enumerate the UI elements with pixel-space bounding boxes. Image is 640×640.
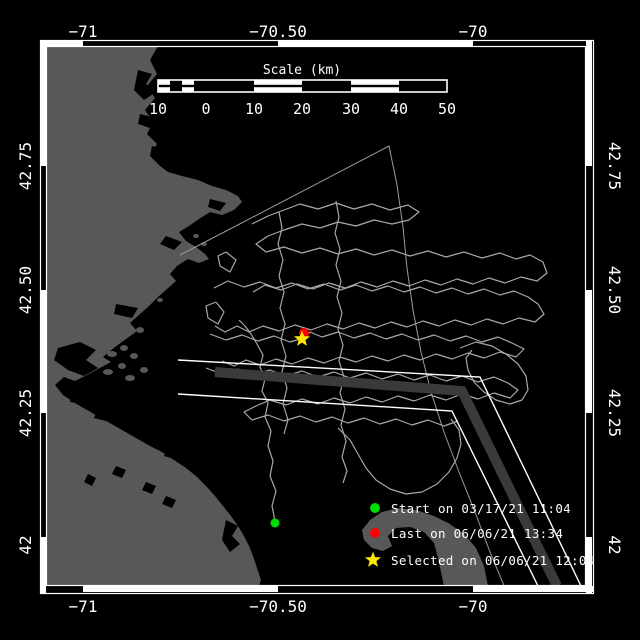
legend-selected-label: Selected on 06/06/21 12:04 <box>391 553 594 568</box>
scale-bar-cell-stripe <box>158 85 170 87</box>
track-line <box>218 252 236 272</box>
lat-tick-label: 42.75 <box>605 142 624 190</box>
legend-last-label: Last on 06/06/21 13:34 <box>391 526 563 541</box>
lat-tick-label: 42.75 <box>16 142 35 190</box>
lat-tick-label: 42 <box>16 535 35 554</box>
lat-axis-right: 42.75 42.50 42.25 42 <box>605 142 624 555</box>
frame-tick-segment <box>586 166 592 290</box>
scale-bar-cell <box>302 80 351 92</box>
lon-tick-label: −70 <box>459 597 488 616</box>
track-polylines <box>206 201 547 521</box>
frame-tick-segment <box>83 586 278 592</box>
lat-tick-label: 42.50 <box>16 266 35 314</box>
scale-bar: Scale (km) 10 0 10 20 30 40 50 <box>149 63 456 118</box>
frame-tick-segment <box>586 290 592 413</box>
track-line <box>206 302 224 324</box>
island <box>96 357 104 363</box>
lat-tick-label: 42.25 <box>16 389 35 437</box>
scale-bar-cell-stripe <box>351 85 399 87</box>
land-mass <box>46 46 261 586</box>
frame-tick-segment <box>473 586 594 592</box>
legend-marker-1 <box>370 528 380 538</box>
scale-bar-tick-labels: 10 0 10 20 30 40 50 <box>149 100 456 118</box>
island <box>120 345 128 351</box>
island <box>193 234 199 238</box>
scale-bar-cell-stripe <box>254 85 302 87</box>
island <box>93 340 99 344</box>
frame-tick-segment <box>586 40 592 166</box>
lon-tick-label: −71 <box>69 597 98 616</box>
scale-tick-label: 50 <box>438 100 456 118</box>
lon-axis-top: −71 −70.50 −70 <box>69 22 488 41</box>
frame-tick-segment <box>40 586 83 592</box>
scale-tick-label: 10 <box>149 100 167 118</box>
island <box>125 375 135 381</box>
scale-bar-cell-stripe <box>182 85 194 87</box>
scale-tick-label: 10 <box>245 100 263 118</box>
track-line <box>239 320 276 521</box>
lat-tick-label: 42.25 <box>605 389 624 437</box>
scale-bar-cell <box>206 80 254 92</box>
lat-axis-left: 42.75 42.50 42.25 42 <box>16 142 35 555</box>
island <box>130 353 138 359</box>
lon-tick-label: −70.50 <box>249 597 307 616</box>
frame-tick-segment <box>586 413 592 537</box>
lat-tick-label: 42.50 <box>605 266 624 314</box>
scale-tick-label: 0 <box>201 100 210 118</box>
legend-start-label: Start on 03/17/21 11:04 <box>391 501 571 516</box>
water-inlet <box>150 146 168 160</box>
scale-bar-cell <box>399 80 447 92</box>
land-mass <box>362 508 488 586</box>
scale-tick-label: 20 <box>293 100 311 118</box>
scale-bar-cell <box>170 80 182 92</box>
track-point-markers <box>271 328 311 528</box>
island <box>136 327 144 333</box>
island <box>103 369 113 375</box>
lon-tick-label: −70 <box>459 22 488 41</box>
scale-tick-label: 40 <box>390 100 408 118</box>
start-point-marker <box>271 519 280 528</box>
scale-bar-segments <box>158 80 447 92</box>
island <box>107 351 117 357</box>
track-line <box>335 201 347 483</box>
lon-tick-label: −71 <box>69 22 98 41</box>
island <box>118 363 126 369</box>
scale-bar-title: Scale (km) <box>263 63 341 78</box>
scale-tick-label: 30 <box>342 100 360 118</box>
track-line <box>252 203 547 292</box>
lon-tick-label: −70.50 <box>249 22 307 41</box>
island <box>140 367 148 373</box>
track-map-screen: −71 −70.50 −70 −71 −70.50 −70 42.75 42.5… <box>0 0 640 640</box>
lat-tick-label: 42 <box>605 535 624 554</box>
legend: Start on 03/17/21 11:04 Last on 06/06/21… <box>365 501 595 568</box>
map-plot: −71 −70.50 −70 −71 −70.50 −70 42.75 42.5… <box>0 0 640 640</box>
island <box>157 298 163 302</box>
track-line <box>460 342 528 404</box>
frame-tick-segment <box>278 586 473 592</box>
scale-bar-cell <box>194 80 206 92</box>
legend-marker-2 <box>365 552 381 567</box>
legend-marker-0 <box>370 503 380 513</box>
track-line <box>210 332 524 366</box>
track-line <box>214 281 544 332</box>
track-line <box>338 419 461 494</box>
lon-axis-bottom: −71 −70.50 −70 <box>69 597 488 616</box>
